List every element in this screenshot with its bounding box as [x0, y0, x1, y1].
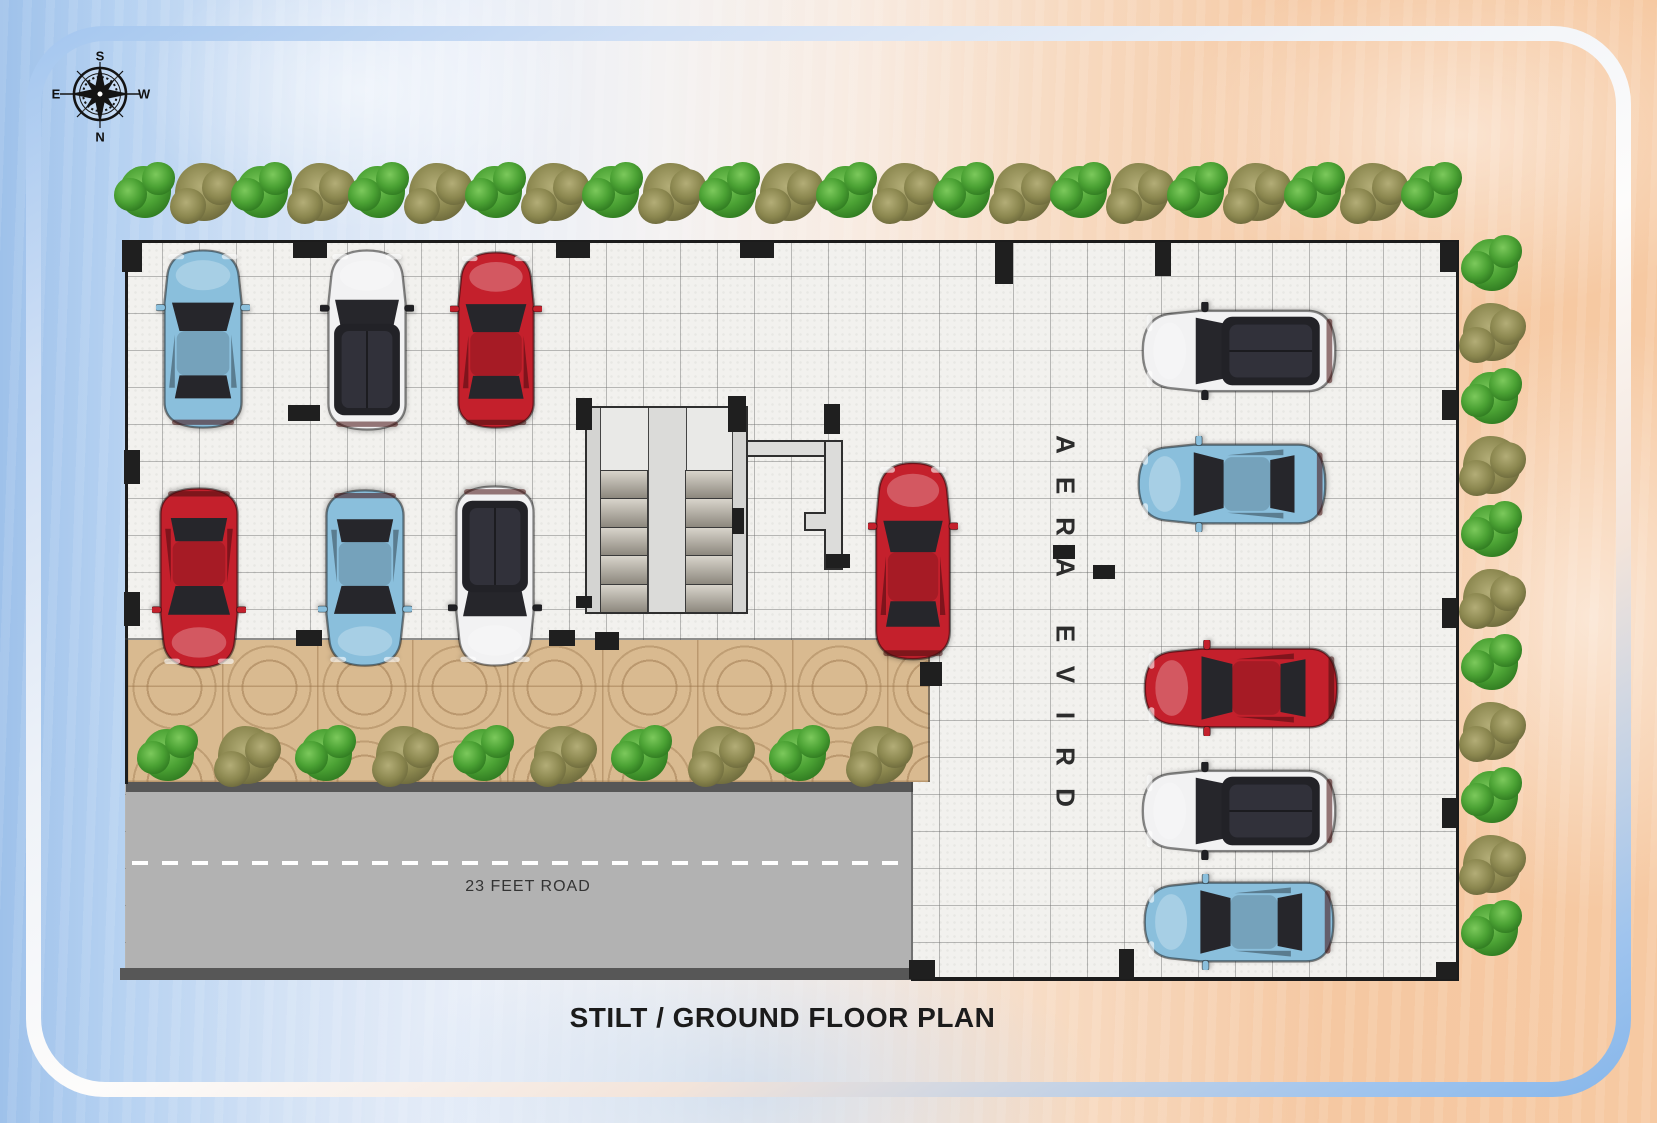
drive-area-letter: R — [1045, 734, 1086, 780]
tree-green — [1055, 166, 1107, 218]
car-body — [448, 482, 542, 670]
tree-green — [1466, 638, 1518, 690]
tree-green — [1466, 904, 1518, 956]
tree-olive — [534, 726, 592, 784]
drive-area-letter: D — [1045, 775, 1086, 821]
car-body — [1140, 640, 1342, 736]
tree-olive — [526, 163, 584, 221]
stair-tread — [600, 527, 648, 555]
drive-area-letter: I — [1045, 693, 1086, 739]
tree-green — [353, 166, 405, 218]
tree-olive — [877, 163, 935, 221]
car-body — [318, 486, 412, 670]
column-marker — [1093, 565, 1115, 579]
car-body — [320, 246, 414, 434]
column-marker — [288, 405, 320, 421]
column-marker — [740, 242, 774, 258]
car-body — [156, 246, 250, 432]
column-marker — [576, 398, 592, 430]
column-marker — [1442, 798, 1457, 828]
car-blue-hatch — [156, 246, 250, 432]
car-body — [1134, 436, 1330, 532]
floor-plan-sheet: 23 FEET ROAD — [0, 0, 1657, 1123]
stair-tread — [600, 470, 648, 498]
staircase — [585, 406, 748, 614]
tree-olive — [1463, 569, 1521, 627]
column-marker — [124, 592, 140, 626]
compass-rose: S N E W — [46, 46, 154, 150]
car-red-sedan — [152, 484, 246, 672]
tree-green — [458, 729, 510, 781]
car-body — [1138, 302, 1340, 400]
column-marker — [732, 508, 744, 534]
stair-landing-strip — [648, 408, 687, 612]
tree-olive — [1463, 702, 1521, 760]
tree-green — [1466, 239, 1518, 291]
tree-green — [774, 729, 826, 781]
drive-area-letter: V — [1045, 652, 1086, 698]
tree-green — [616, 729, 668, 781]
car-white-suv — [1138, 302, 1340, 400]
stair-tread — [685, 527, 733, 555]
tree-green — [938, 166, 990, 218]
car-white-suv — [320, 246, 414, 434]
car-white-suv — [448, 482, 542, 670]
car-body — [868, 458, 958, 664]
floor-plan: 23 FEET ROAD — [0, 0, 1657, 1123]
road-curb-bottom — [120, 968, 917, 980]
tree-green — [119, 166, 171, 218]
tree-green — [587, 166, 639, 218]
stair-tread — [685, 498, 733, 526]
stair-tread — [600, 498, 648, 526]
tree-olive — [643, 163, 701, 221]
column-marker — [824, 404, 840, 434]
column-marker — [595, 632, 619, 650]
tree-green — [470, 166, 522, 218]
column-marker — [576, 596, 592, 608]
wall-bottom — [911, 977, 1459, 981]
compass-label-left: E — [52, 86, 61, 101]
corridor-wall-nub — [804, 512, 826, 531]
tree-olive — [1345, 163, 1403, 221]
tree-green — [1289, 166, 1341, 218]
column-marker — [728, 396, 746, 432]
stair-tread — [600, 555, 648, 583]
tree-olive — [376, 726, 434, 784]
column-marker — [549, 630, 575, 646]
road-label: 23 FEET ROAD — [408, 878, 648, 896]
column-marker — [124, 450, 140, 484]
road-right-edge — [911, 782, 913, 978]
tree-olive — [1228, 163, 1286, 221]
stair-flight-right — [685, 470, 733, 612]
stair-rail-left — [587, 408, 601, 612]
corridor-wall-vertical — [824, 440, 843, 570]
drive-area-letter: E — [1045, 611, 1086, 657]
column-marker — [920, 662, 942, 686]
compass-label-bottom: N — [95, 129, 104, 144]
tree-green — [142, 729, 194, 781]
tree-green — [1406, 166, 1458, 218]
car-body — [1138, 762, 1340, 860]
stair-tread — [685, 555, 733, 583]
stair-tread — [685, 470, 733, 498]
tree-olive — [850, 726, 908, 784]
tree-olive — [292, 163, 350, 221]
car-blue-hatch — [318, 486, 412, 670]
stair-flight-left — [600, 470, 648, 612]
drive-area-letter: E — [1045, 463, 1086, 509]
column-marker — [1155, 242, 1171, 276]
car-red-sedan — [450, 248, 542, 432]
column-marker — [1119, 949, 1134, 979]
column-marker — [1442, 390, 1457, 420]
compass-label-right: W — [138, 86, 151, 101]
wall-left — [125, 240, 128, 784]
tree-green — [821, 166, 873, 218]
tree-green — [300, 729, 352, 781]
car-red-sedan — [1140, 640, 1342, 736]
column-marker — [1440, 242, 1457, 272]
tree-green — [1466, 505, 1518, 557]
tree-olive — [994, 163, 1052, 221]
stair-tread — [685, 584, 733, 612]
road: 23 FEET ROAD — [126, 782, 913, 980]
tree-olive — [692, 726, 750, 784]
column-marker — [1442, 598, 1457, 628]
tree-olive — [218, 726, 276, 784]
car-body — [450, 248, 542, 432]
plan-title: STILT / GROUND FLOOR PLAN — [0, 1002, 1565, 1034]
tree-olive — [760, 163, 818, 221]
compass-label-top: S — [96, 48, 105, 63]
drive-area-letter: A — [1045, 545, 1086, 591]
tree-olive — [409, 163, 467, 221]
column-marker — [556, 242, 590, 258]
tree-green — [1172, 166, 1224, 218]
tree-olive — [1463, 835, 1521, 893]
car-red-sedan — [868, 458, 958, 664]
tree-olive — [175, 163, 233, 221]
car-body — [152, 484, 246, 672]
drive-area-label: AERAEVIRD — [1042, 424, 1088, 818]
column-marker — [995, 242, 1013, 284]
tree-olive — [1111, 163, 1169, 221]
tree-olive — [1463, 303, 1521, 361]
drive-area-letter: A — [1045, 422, 1086, 468]
column-marker — [826, 554, 850, 568]
car-blue-hatch — [1134, 436, 1330, 532]
tree-green — [1466, 771, 1518, 823]
tree-green — [236, 166, 288, 218]
tree-olive — [1463, 436, 1521, 494]
road-center-dashed-line — [132, 861, 907, 865]
tree-green — [1466, 372, 1518, 424]
stair-tread — [600, 584, 648, 612]
tree-green — [704, 166, 756, 218]
column-marker — [909, 960, 935, 979]
car-blue-hatch — [1140, 874, 1338, 970]
car-white-suv — [1138, 762, 1340, 860]
drive-area-letter: R — [1045, 504, 1086, 550]
column-marker — [122, 240, 142, 272]
column-marker — [1436, 962, 1457, 979]
car-body — [1140, 874, 1338, 970]
